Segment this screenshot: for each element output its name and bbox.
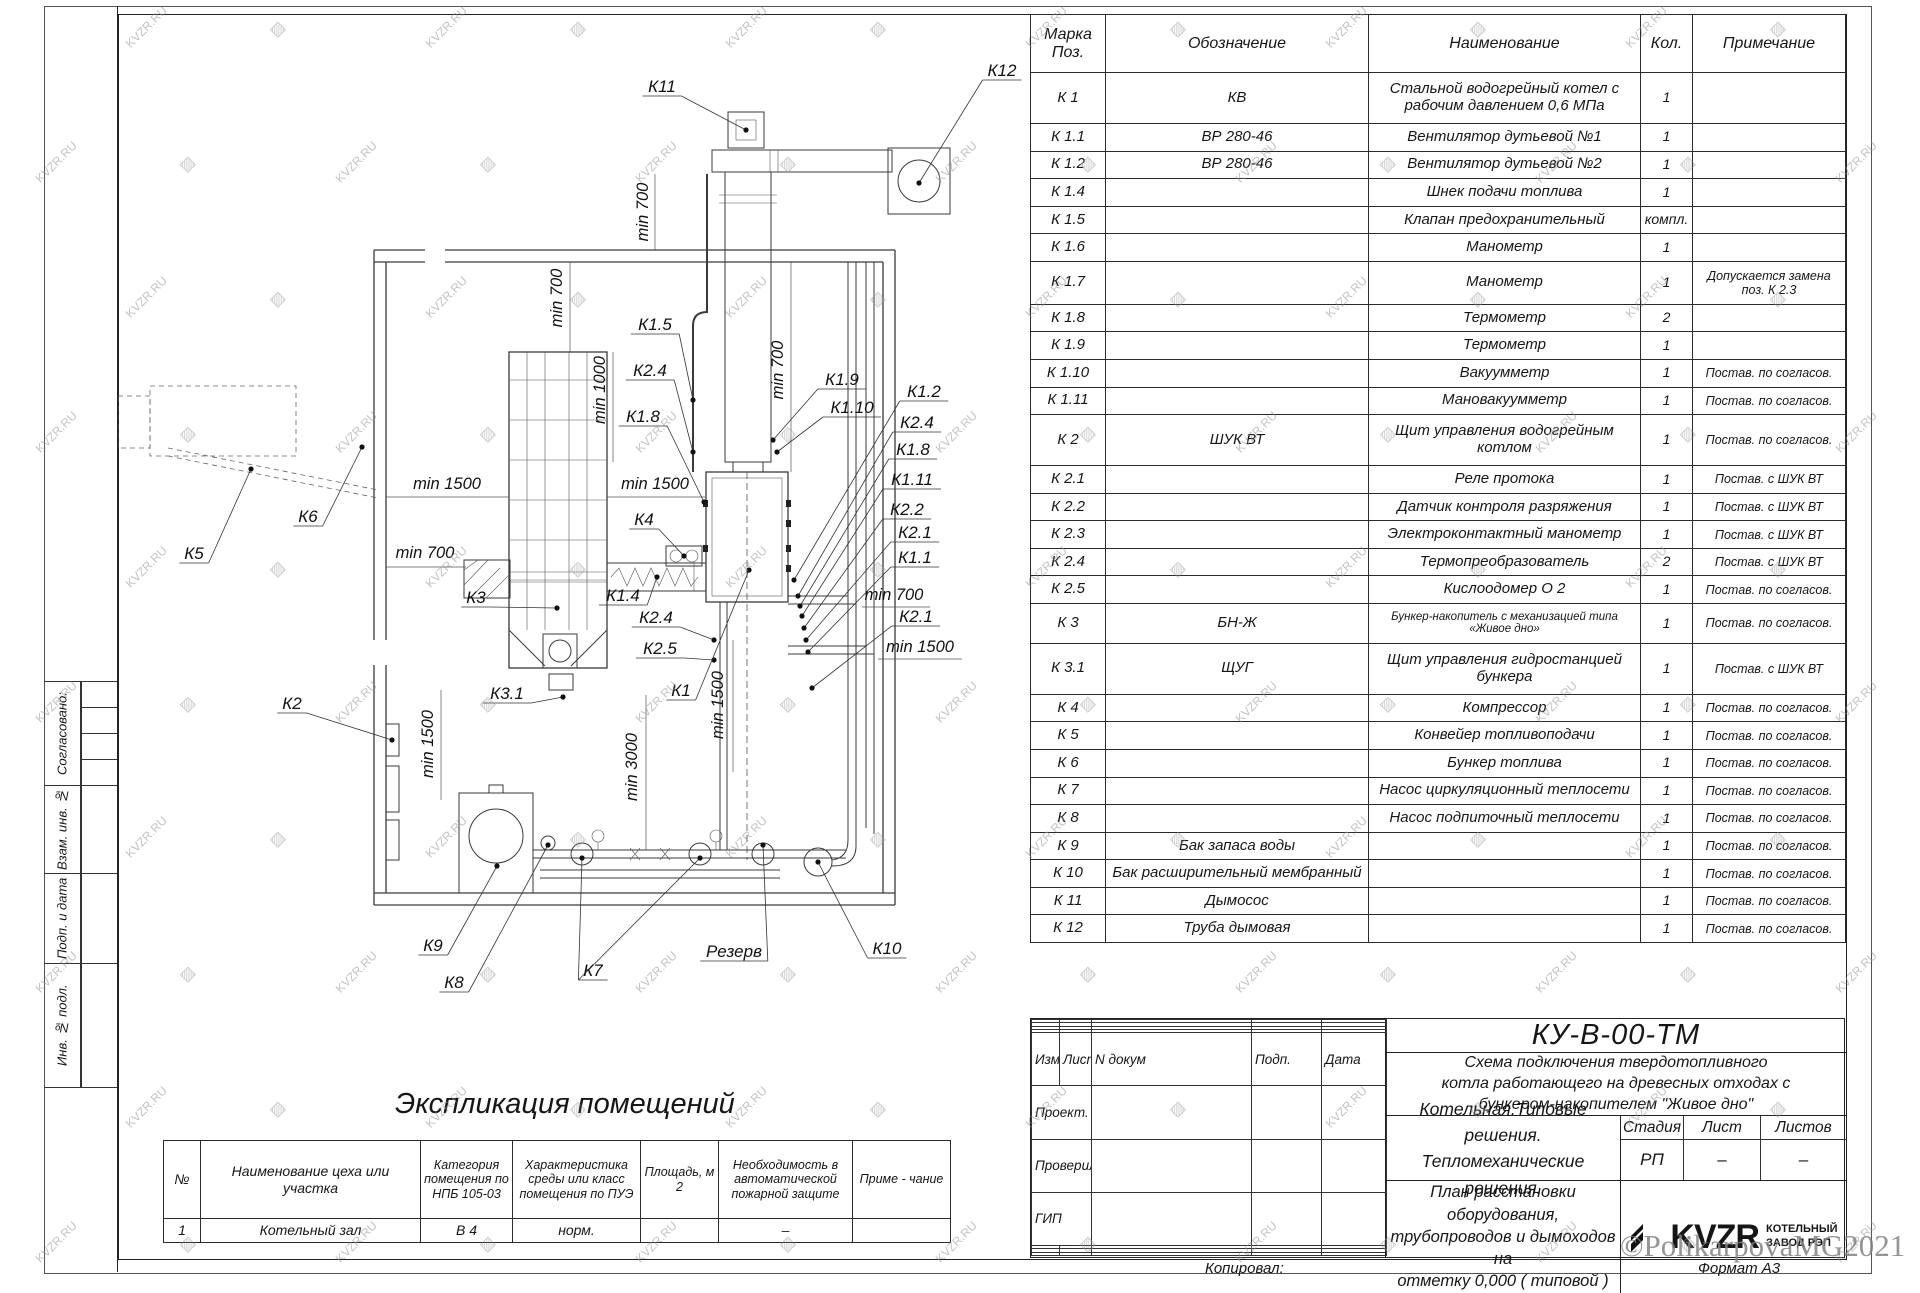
dimension-label: min 1000 xyxy=(591,355,609,424)
dimension-label: min 700 xyxy=(396,544,456,562)
spec-row: К 8Насос подпиточный теплосети1Постав. п… xyxy=(1031,805,1846,833)
callout-label: К1.10 xyxy=(830,398,874,417)
stamp-label: Взам. инв. № xyxy=(44,786,81,873)
callout-label: К2.4 xyxy=(633,361,667,380)
callout-label: К10 xyxy=(873,939,902,958)
callout-label: К2.5 xyxy=(643,639,677,658)
spec-row: К 1.9Термометр1 xyxy=(1031,332,1846,360)
watermark-credit: ©PolikarpovaMG2021 xyxy=(1620,1228,1905,1264)
spec-row: К 7Насос циркуляционный теплосети1Постав… xyxy=(1031,777,1846,805)
spec-row: К 2.4Термопреобразователь2Постав. с ШУК … xyxy=(1031,548,1846,576)
dimension-label: min 700 xyxy=(865,586,925,604)
spec-header-designation: Обозначение xyxy=(1106,15,1369,73)
spec-row: К 1.2ВР 280-46Вентилятор дутьевой №21 xyxy=(1031,151,1846,179)
dimension-label: min 3000 xyxy=(623,732,641,801)
callout-label: К1 xyxy=(671,681,690,700)
dimension-label: min 700 xyxy=(548,268,566,328)
room-data-row: 1Котельный залВ 4норм.– xyxy=(164,1219,951,1243)
spec-row: К 4Компрессор1Постав. по согласов. xyxy=(1031,694,1846,722)
spec-row: К 1.7Манометр1Допускается замена поз. К … xyxy=(1031,261,1846,304)
spec-row: К 5Конвейер топливоподачи1Постав. по сог… xyxy=(1031,722,1846,750)
callout-label: К1.4 xyxy=(606,586,640,605)
spec-row: К 9Бак запаса воды1Постав. по согласов. xyxy=(1031,832,1846,860)
control-panel xyxy=(386,820,399,860)
stamp-label: Инв. № подл. xyxy=(44,964,81,1087)
room-header-cell: Необходимость в автоматической пожарной … xyxy=(719,1141,853,1219)
stamp-label: Подп. и дата xyxy=(44,874,81,963)
title-block: ИзмЛист N докумПодп. Дата Проект. Провер… xyxy=(1030,1018,1845,1258)
spec-row: К 1.8Термометр2 xyxy=(1031,304,1846,332)
riser-pipes xyxy=(848,262,874,846)
document-code: КУ-В-00-ТМ xyxy=(1386,1019,1846,1053)
room-header-cell: Категория помещения по НПБ 105-03 xyxy=(421,1141,513,1219)
spec-header-note: Примечание xyxy=(1693,15,1846,73)
spec-header-name: Наименование xyxy=(1369,15,1641,73)
callout-label: К3 xyxy=(466,588,486,607)
spec-row: К 2.3Электроконтактный манометр1Постав. … xyxy=(1031,521,1846,549)
spec-header-qty: Кол. xyxy=(1641,15,1693,73)
stamp-boxes xyxy=(81,682,117,785)
revision-row: ГИП xyxy=(1032,1192,1387,1245)
spec-row: К 2.2Датчик контроля разряжения1Постав. … xyxy=(1031,493,1846,521)
spec-row: К 3.1ЩУГЩит управления гидростанцией бун… xyxy=(1031,643,1846,694)
stamp-boxes xyxy=(81,874,117,963)
stamp-empty-cell xyxy=(44,6,117,682)
fuel-storage xyxy=(150,386,296,456)
callout-label: К1.2 xyxy=(907,382,941,401)
room-header-cell: Наименование цеха или участка xyxy=(201,1141,421,1219)
callout-label: К2.2 xyxy=(890,500,924,519)
room-header-cell: Характеристика среды или класс помещения… xyxy=(513,1141,641,1219)
specification-table: Марка Поз. Обозначение Наименование Кол.… xyxy=(1030,14,1845,943)
stamp-boxes xyxy=(81,786,117,873)
spec-row: К 2.1Реле протока1Постав. с ШУК ВТ xyxy=(1031,466,1846,494)
room-explication-table: №Наименование цеха или участкаКатегория … xyxy=(163,1140,950,1243)
callout-label: К2.4 xyxy=(900,413,934,432)
spec-row: К 2.5Кислоодомер О 21Постав. по согласов… xyxy=(1031,576,1846,604)
stamp-label: Согласовано: xyxy=(44,682,81,785)
spec-row: К 1КВСтальной водогрейный котел с рабочи… xyxy=(1031,73,1846,124)
room-header-cell: Площадь, м 2 xyxy=(641,1141,719,1219)
sheet-value: – xyxy=(1684,1140,1761,1180)
fuel-conveyor xyxy=(168,448,378,498)
callout-label: К1.5 xyxy=(638,315,672,334)
callout-label: К2 xyxy=(282,694,302,713)
sheets-header: Листов xyxy=(1761,1116,1846,1140)
spec-row: К 11Дымосос1Постав. по согласов. xyxy=(1031,887,1846,915)
room-header-cell: Приме - чание xyxy=(853,1141,951,1219)
project-name: Котельная.Типовые решения. Тепломеханиче… xyxy=(1386,1116,1620,1181)
copied-label: Копировал: xyxy=(1205,1260,1284,1277)
stage-table: Стадия Лист Листов РП – – xyxy=(1621,1116,1846,1181)
callout-label: Резерв xyxy=(706,942,762,961)
dimension-lines xyxy=(386,174,962,850)
stage-header: Стадия xyxy=(1621,1116,1684,1140)
safety-pipe xyxy=(693,174,707,472)
callout-label: К7 xyxy=(583,961,603,980)
stamp-empty-cell xyxy=(44,1088,117,1266)
callout-label: К1.9 xyxy=(825,370,859,389)
callout-label: К5 xyxy=(184,544,204,563)
dimension-label: min 1500 xyxy=(413,475,482,493)
room-header-row: №Наименование цеха или участкаКатегория … xyxy=(164,1141,951,1219)
dimension-label: min 700 xyxy=(634,182,652,242)
revision-row: Проверил xyxy=(1032,1139,1387,1192)
control-panel xyxy=(386,766,399,812)
callout-label: К1.8 xyxy=(896,440,930,459)
room-header-cell: № xyxy=(164,1141,201,1219)
spec-row: К 6Бункер топлива1Постав. по согласов. xyxy=(1031,749,1846,777)
spec-row: К 10Бак расширительный мембранный1Постав… xyxy=(1031,860,1846,888)
spec-row: К 3БН-ЖБункер-накопитель с механизацией … xyxy=(1031,603,1846,643)
dimension-label: min 1500 xyxy=(886,638,955,656)
sheet-title: План расстановки оборудования, трубопров… xyxy=(1386,1181,1620,1292)
callout-label: К11 xyxy=(648,77,676,96)
callout-label: К1.8 xyxy=(626,407,660,426)
callout-label: К3.1 xyxy=(490,684,524,703)
plan-drawing: К11К12К1.5К2.4К1.8К1.9К1.10К1.2К2.4К1.8К… xyxy=(118,14,1050,1114)
dimension-label: min 700 xyxy=(769,340,787,400)
callout-label: К1.1 xyxy=(898,548,932,567)
stamp-cell-soglasovano: Согласовано: xyxy=(44,682,117,786)
callout-label: К9 xyxy=(423,936,443,955)
spec-row: К 2ШУК ВТЩит управления водогрейным котл… xyxy=(1031,415,1846,466)
callout-label: К6 xyxy=(298,507,318,526)
left-stamp-column: Согласовано: Взам. инв. № Подп. и дата И… xyxy=(44,6,118,1272)
stage-value: РП xyxy=(1621,1140,1684,1180)
dimension-label: min 1500 xyxy=(621,475,690,493)
spec-row: К 1.11Мановакуумметр1Постав. по согласов… xyxy=(1031,387,1846,415)
revision-table: ИзмЛист N докумПодп. Дата Проект. Провер… xyxy=(1031,1019,1386,1257)
revision-header-row: ИзмЛист N докумПодп. Дата xyxy=(1032,1033,1387,1086)
drawing-sheet: Согласовано: Взам. инв. № Подп. и дата И… xyxy=(0,0,1920,1280)
dimension-label: min 1500 xyxy=(709,670,727,739)
callout-label: К2.1 xyxy=(898,523,932,542)
flue-riser xyxy=(725,172,771,462)
sheet-header: Лист xyxy=(1684,1116,1761,1140)
spec-row: К 1.10Вакуумметр1Постав. по согласов. xyxy=(1031,360,1846,388)
stamp-boxes xyxy=(81,964,117,1087)
revision-row: Проект. xyxy=(1032,1086,1387,1139)
circulation-pump xyxy=(689,843,711,865)
spec-row: К 1.5Клапан предохранительныйкомпл. xyxy=(1031,206,1846,234)
spec-row: К 1.1ВР 280-46Вентилятор дутьевой №11 xyxy=(1031,123,1846,151)
pipe-manifold xyxy=(533,602,846,878)
dimension-label: min 1500 xyxy=(419,709,437,778)
callout-label: К2.4 xyxy=(639,608,673,627)
stamp-cell-vzam: Взам. инв. № xyxy=(44,786,117,874)
callout-label: К1.11 xyxy=(891,470,933,489)
spec-row: К 1.4Шнек подачи топлива1 xyxy=(1031,179,1846,207)
callout-label: К12 xyxy=(988,61,1017,80)
stamp-cell-inv: Инв. № подл. xyxy=(44,964,117,1088)
callout-label: К2.1 xyxy=(899,607,933,626)
sheets-value: – xyxy=(1761,1140,1846,1180)
spec-header-row: Марка Поз. Обозначение Наименование Кол.… xyxy=(1031,15,1846,73)
spec-row: К 12Труба дымовая1Постав. по согласов. xyxy=(1031,915,1846,943)
callout-label: К4 xyxy=(634,510,653,529)
flue-duct xyxy=(712,150,892,172)
callout-label: К8 xyxy=(444,973,464,992)
spec-row: К 1.6Манометр1 xyxy=(1031,234,1846,262)
stamp-cell-podp: Подп. и дата xyxy=(44,874,117,964)
